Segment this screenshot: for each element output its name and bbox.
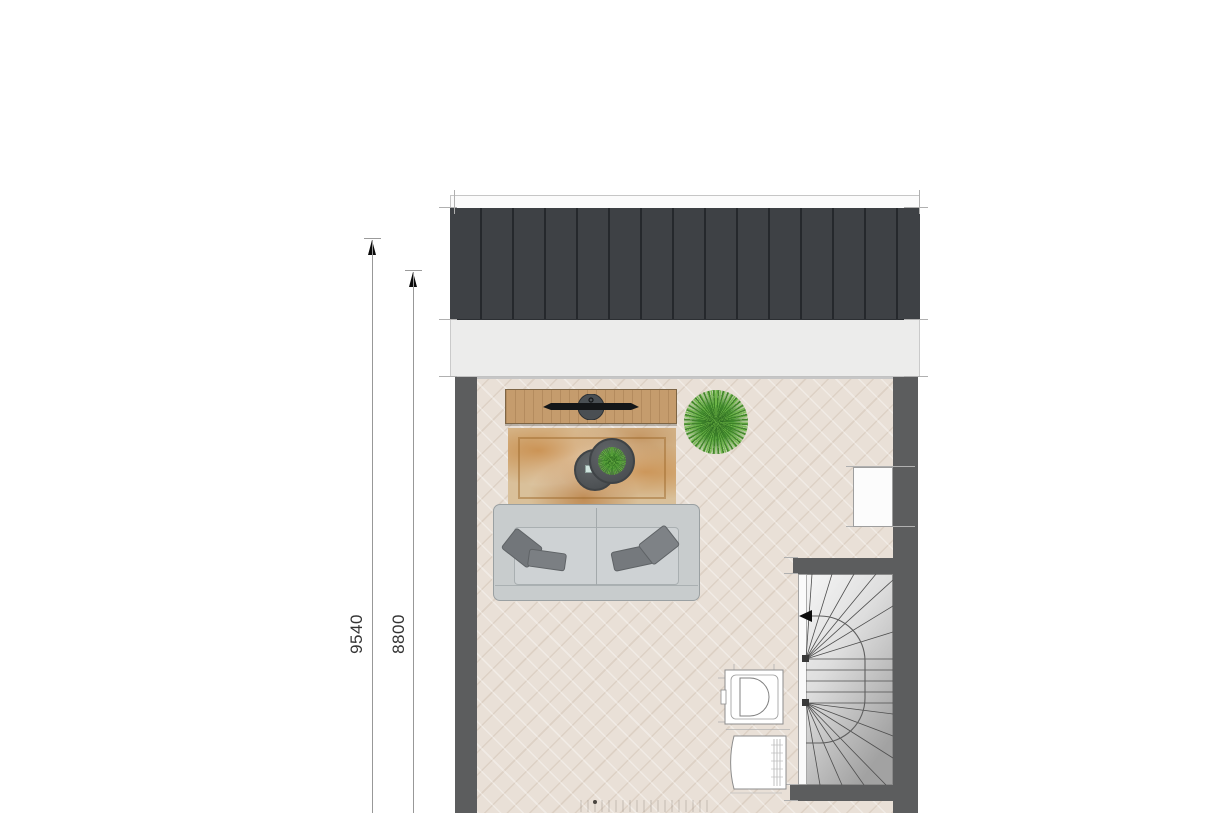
facade-glass-line bbox=[477, 377, 893, 379]
dimension-line bbox=[372, 240, 373, 813]
extension-line bbox=[726, 729, 790, 730]
extension-line bbox=[904, 207, 928, 208]
extension-line bbox=[439, 319, 457, 320]
extension-line bbox=[784, 573, 798, 574]
dimension-label-inner: 8800 bbox=[389, 604, 409, 664]
dimension-tick bbox=[364, 238, 381, 239]
dimension-tick bbox=[405, 270, 422, 271]
sofa-cushion-divider bbox=[596, 508, 597, 585]
table-plant bbox=[598, 447, 626, 475]
left-wall bbox=[455, 377, 477, 813]
extension-line bbox=[904, 319, 928, 320]
staircase-with-winders bbox=[798, 574, 893, 785]
roof-ridge-strip bbox=[450, 195, 920, 209]
floor-plan-canvas: 9540 8800 bbox=[0, 0, 1220, 813]
cutoff-dot bbox=[593, 800, 597, 804]
roof-panel bbox=[450, 208, 920, 320]
right-wall bbox=[893, 377, 918, 813]
toilet bbox=[718, 664, 790, 730]
extension-line bbox=[784, 557, 798, 558]
stairwell-top-wall bbox=[793, 558, 893, 574]
facade-strip bbox=[450, 320, 920, 377]
extension-line bbox=[919, 190, 920, 214]
dimension-line bbox=[413, 272, 414, 813]
stairwell-bottom-wall bbox=[790, 785, 893, 801]
potted-plant bbox=[684, 390, 748, 454]
washbasin-cabinet bbox=[722, 731, 794, 795]
closet-niche bbox=[853, 467, 893, 527]
dimension-label-outer: 9540 bbox=[347, 604, 367, 664]
cutoff-artifact bbox=[580, 800, 710, 812]
extension-line bbox=[784, 800, 798, 801]
television bbox=[543, 394, 639, 420]
extension-line bbox=[454, 190, 455, 214]
sofa-front-line bbox=[495, 585, 698, 586]
